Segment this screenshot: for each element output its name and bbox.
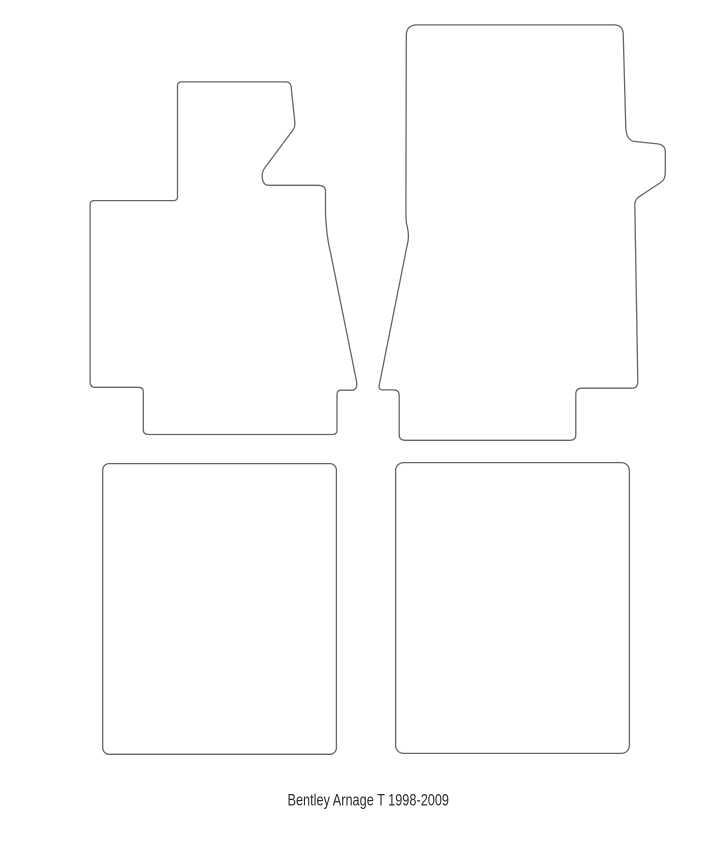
- svg-text:Bentley Arnage T 1998-2009: Bentley Arnage T 1998-2009: [288, 791, 450, 809]
